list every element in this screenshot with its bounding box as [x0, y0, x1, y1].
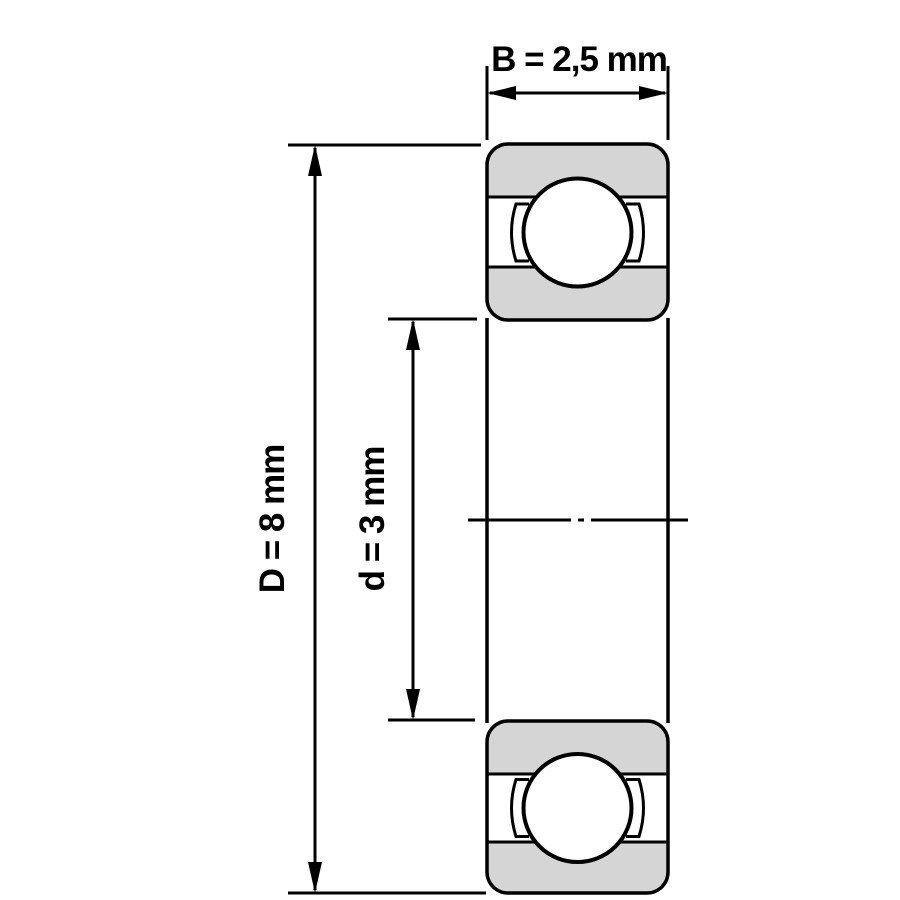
bearing-technical-drawing: B = 2,5 mm: [0, 0, 900, 900]
bearing-bottom-ring-section: [487, 721, 668, 893]
bore-diameter-label: d = 3 mm: [353, 447, 392, 592]
width-dimension: B = 2,5 mm: [487, 40, 668, 140]
width-dimension-label: B = 2,5 mm: [491, 40, 667, 79]
top-bearing-ball: [524, 179, 632, 287]
arrow-up-icon: [308, 145, 322, 176]
outer-diameter-label: D = 8 mm: [253, 445, 292, 594]
bottom-bearing-ball: [524, 754, 632, 862]
arrow-down-icon: [308, 862, 322, 893]
arrow-up-icon: [406, 319, 420, 350]
arrow-down-icon: [406, 689, 420, 720]
bearing-top-ring-section: [487, 144, 668, 320]
bearing-drawing-svg: B = 2,5 mm: [0, 0, 900, 900]
arrow-left-icon: [487, 86, 516, 100]
bore-diameter-dimension: d = 3 mm: [353, 319, 477, 720]
arrow-right-icon: [639, 86, 668, 100]
